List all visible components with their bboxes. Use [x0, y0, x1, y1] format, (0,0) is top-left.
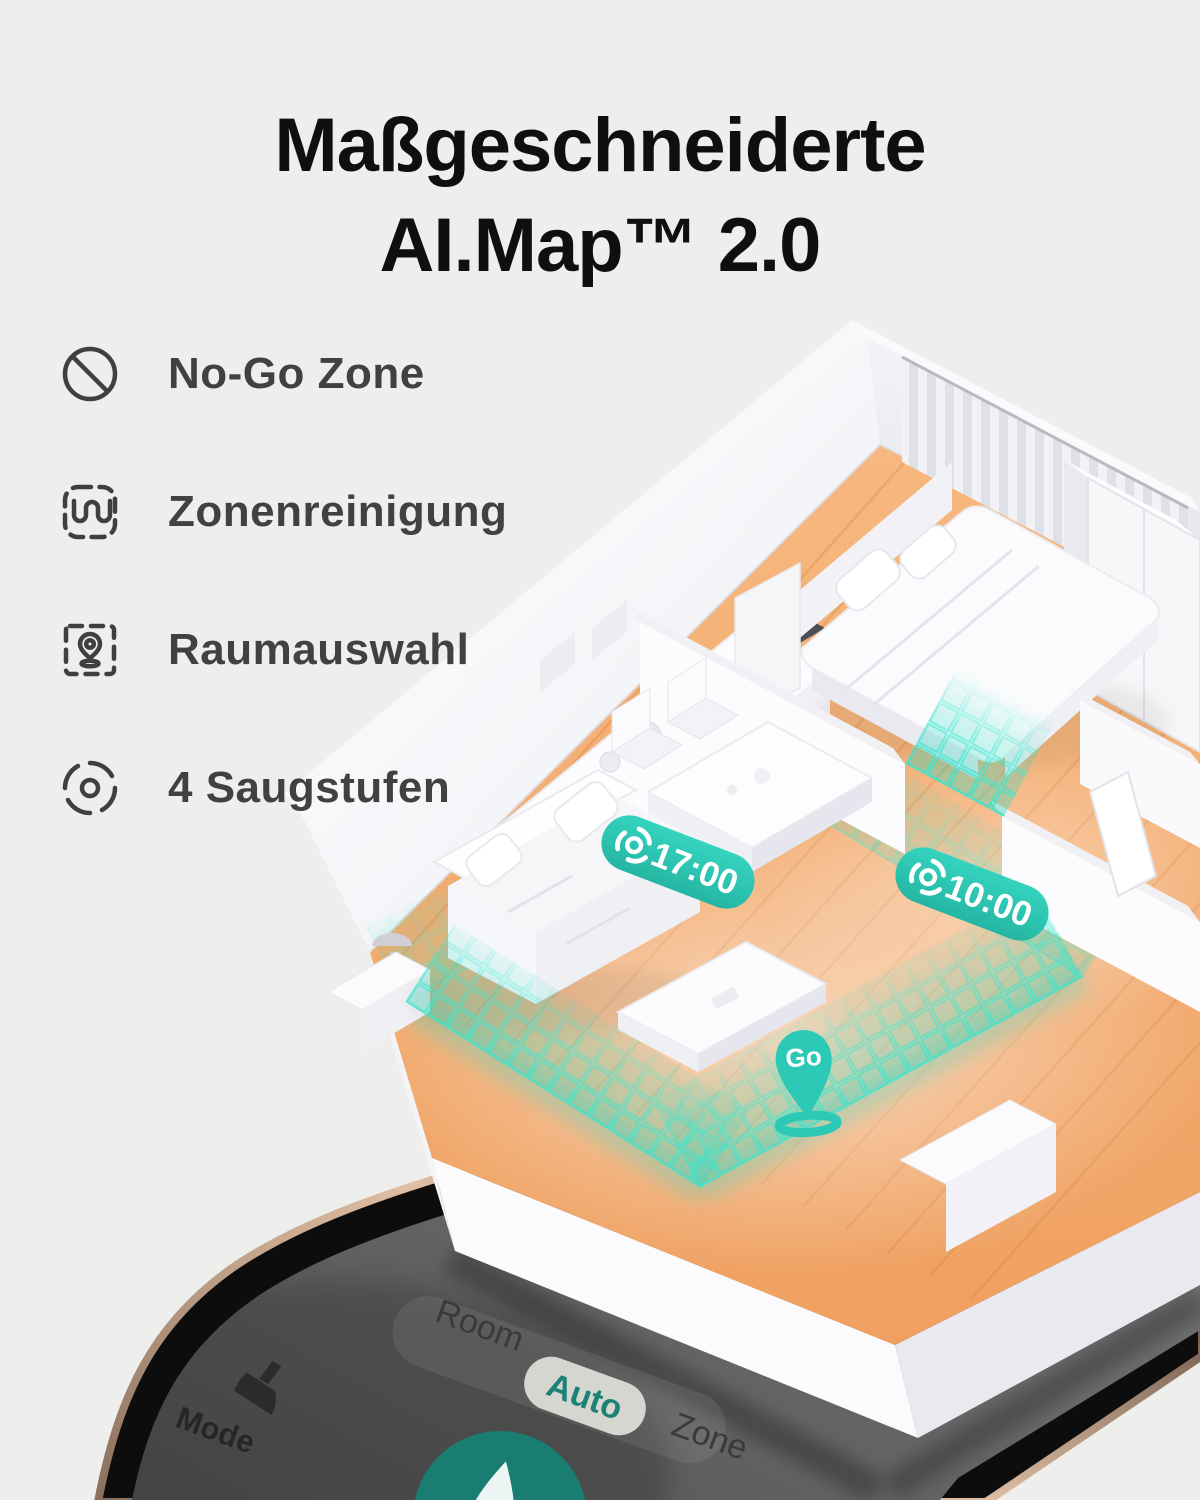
- go-pin-label: Go: [785, 1041, 823, 1073]
- headline-line-2: AI.Map™ 2.0: [0, 196, 1200, 296]
- feature-list: No-Go Zone Zonenreinigung Raumauswah: [58, 342, 507, 820]
- marketing-image: Room Auto Zone Mode: [0, 0, 1200, 1500]
- feature-suction-levels: 4 Saugstufen: [58, 756, 507, 820]
- feature-zone-cleaning: Zonenreinigung: [58, 480, 507, 544]
- feature-label: No-Go Zone: [168, 349, 425, 399]
- feature-label: Zonenreinigung: [168, 487, 507, 537]
- feature-label: Raumauswahl: [168, 625, 469, 675]
- room-selection-icon: [58, 618, 122, 682]
- no-go-zone-icon: [58, 342, 122, 406]
- suction-levels-icon: [58, 756, 122, 820]
- headline: Maßgeschneiderte AI.Map™ 2.0: [0, 96, 1200, 297]
- feature-label: 4 Saugstufen: [168, 763, 450, 813]
- zone-cleaning-icon: [58, 480, 122, 544]
- feature-no-go-zone: No-Go Zone: [58, 342, 507, 406]
- feature-room-selection: Raumauswahl: [58, 618, 507, 682]
- headline-line-1: Maßgeschneiderte: [0, 96, 1200, 196]
